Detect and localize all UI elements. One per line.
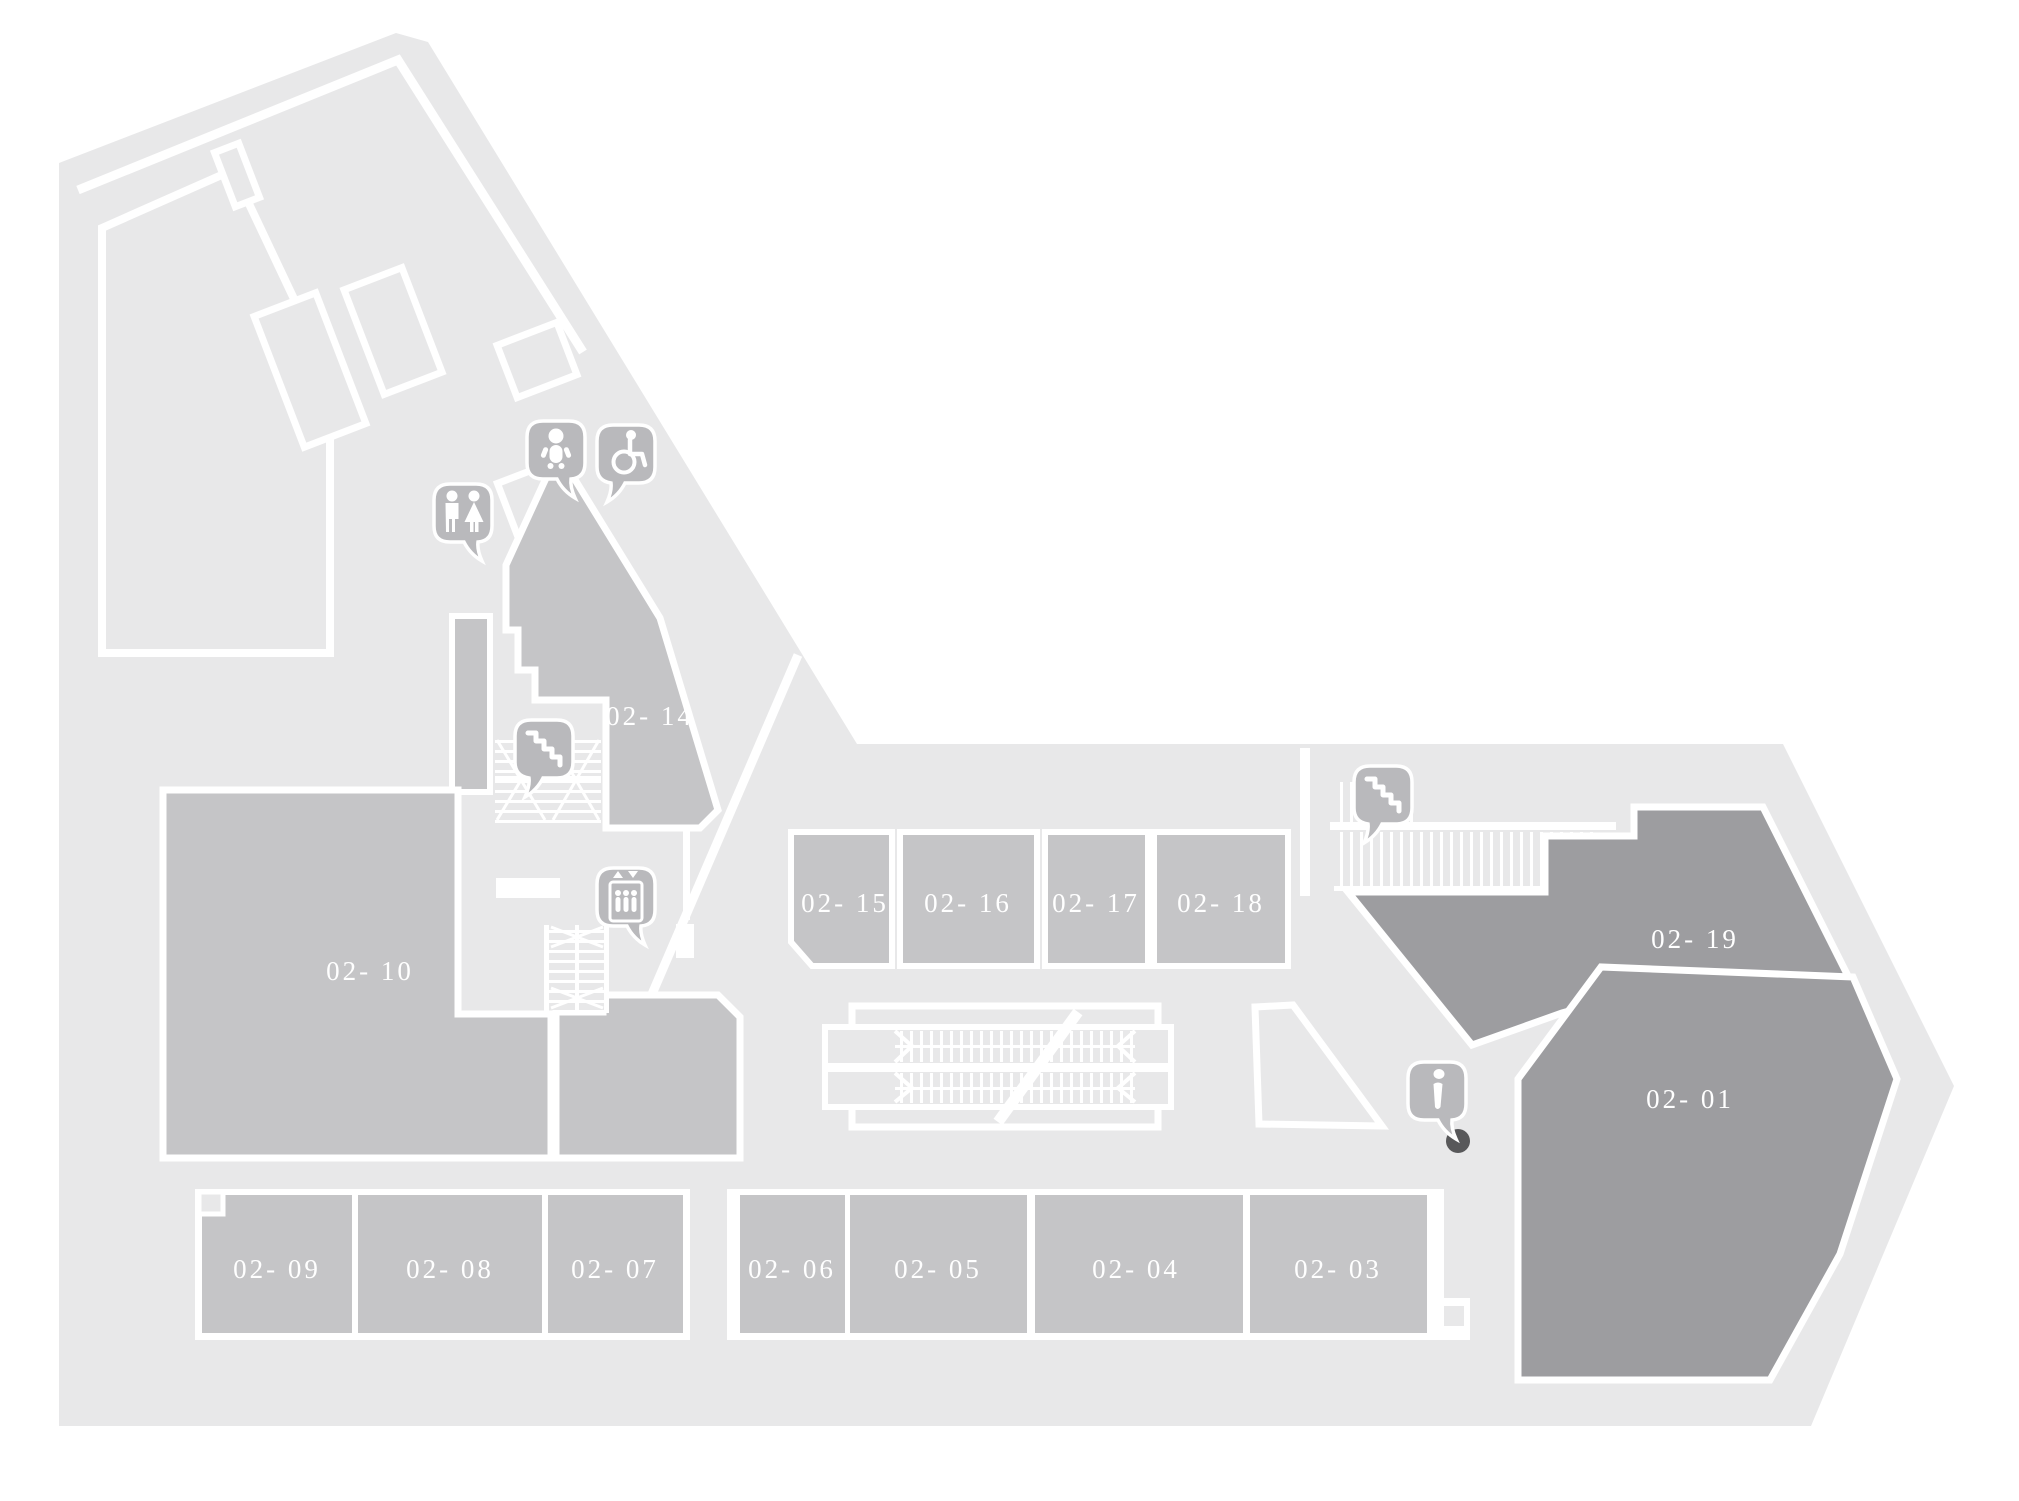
staircase-west-lower — [544, 925, 609, 1013]
south-slab-step-notch — [1444, 1306, 1464, 1326]
room-label: 02- 09 — [233, 1254, 321, 1284]
floor-plan-map: 02- 14 02- 10 02- 15 02- 16 02- 17 — [0, 0, 2019, 1501]
room-label: 02- 14 — [606, 701, 694, 731]
room-label: 02- 07 — [571, 1254, 659, 1284]
room-label: 02- 04 — [1092, 1254, 1180, 1284]
corridor-wall-notch — [676, 924, 694, 958]
escalator — [825, 1006, 1171, 1127]
room-label: 02- 08 — [406, 1254, 494, 1284]
room-label: 02- 16 — [924, 888, 1012, 918]
room-label: 02- 01 — [1646, 1084, 1734, 1114]
room-label: 02- 06 — [748, 1254, 836, 1284]
room-label: 02- 19 — [1651, 924, 1739, 954]
room-label: 02- 10 — [326, 956, 414, 986]
corridor-wall-right-of-0218 — [1300, 748, 1310, 896]
room-label: 02- 03 — [1294, 1254, 1382, 1284]
service-wall-strip — [452, 616, 490, 792]
room-label: 02- 17 — [1052, 888, 1140, 918]
room-label: 02- 05 — [894, 1254, 982, 1284]
room-label: 02- 18 — [1177, 888, 1265, 918]
room-02-09-notch — [199, 1192, 223, 1214]
room-label: 02- 15 — [801, 888, 889, 918]
central-block — [556, 995, 740, 1158]
floor-plan-canvas: 02- 14 02- 10 02- 15 02- 16 02- 17 — [0, 0, 2019, 1501]
